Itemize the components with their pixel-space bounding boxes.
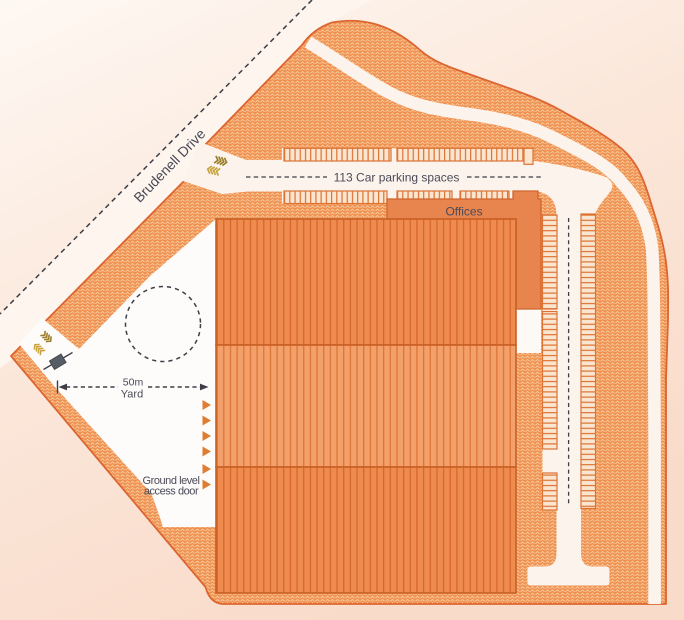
svg-text:Yard: Yard: [121, 389, 143, 401]
svg-text:access door: access door: [144, 486, 199, 498]
svg-text:113 Car parking spaces: 113 Car parking spaces: [334, 171, 460, 185]
svg-text:Offices: Offices: [445, 205, 482, 219]
svg-text:50m: 50m: [123, 377, 144, 389]
